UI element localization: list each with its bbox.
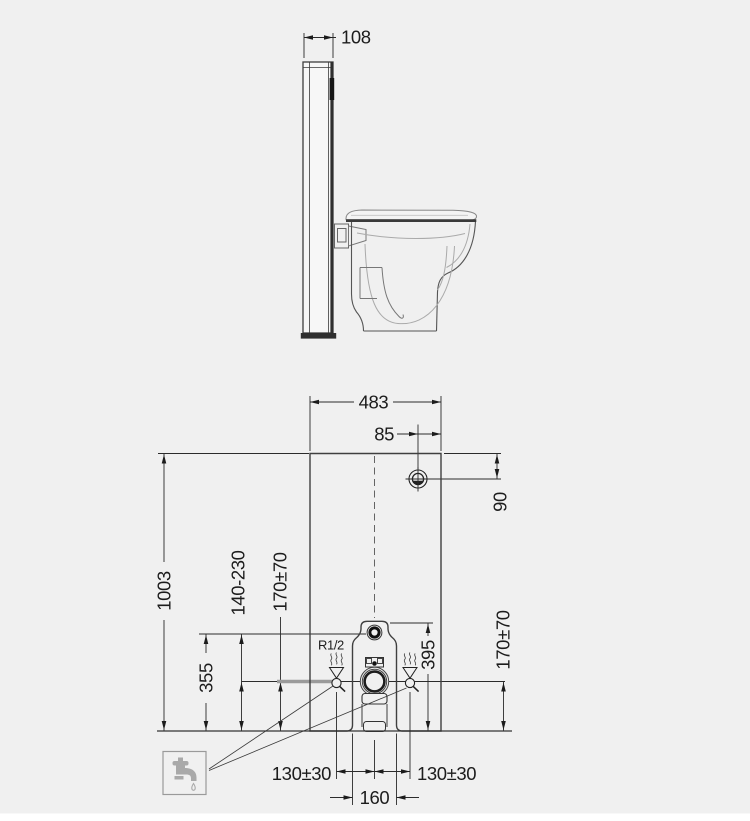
flush-button-icon bbox=[330, 78, 335, 100]
dim-height-label: 1003 bbox=[154, 571, 175, 611]
dim-left-offset: 130±30 bbox=[272, 763, 375, 784]
bottom-margin bbox=[0, 814, 750, 821]
dim-left-offset-label: 130±30 bbox=[272, 763, 331, 784]
technical-drawing-canvas: 108 bbox=[0, 0, 750, 821]
dim-fixing-offset-label: 85 bbox=[374, 424, 394, 445]
dim-outlet-height-395: 395 bbox=[390, 623, 439, 731]
water-valve-left-icon bbox=[330, 653, 346, 692]
dim-supply-height-355: 355 bbox=[196, 634, 217, 731]
fixing-screw-icon bbox=[406, 467, 431, 492]
dim-supply-range-140-230: 140-230 bbox=[228, 550, 249, 731]
dim-flush-height-left: 170±70 bbox=[270, 552, 291, 731]
water-tap-icon bbox=[163, 752, 206, 795]
dim-flush-height-right-label: 170±70 bbox=[493, 610, 514, 669]
toilet-side-view bbox=[335, 210, 477, 331]
front-view: 483 85 90 1003 bbox=[154, 392, 514, 809]
dim-supply-height-label: 355 bbox=[196, 663, 217, 693]
dim-fixing-height-90: 90 bbox=[428, 454, 511, 512]
dim-flush-height-left-label: 170±70 bbox=[270, 552, 291, 611]
dim-outlet-height-label: 395 bbox=[418, 640, 439, 670]
dim-depth-label: 108 bbox=[341, 27, 371, 48]
glass-panel-edge bbox=[330, 62, 333, 333]
mounting-bracket bbox=[366, 658, 384, 668]
panel-base bbox=[301, 333, 336, 339]
dim-right-offset-label: 130±30 bbox=[417, 763, 476, 784]
drain-pipe-socket bbox=[360, 667, 388, 731]
water-valve-right-icon bbox=[403, 653, 419, 692]
side-view-module-panel bbox=[301, 62, 336, 339]
dim-fixing-offset-85: 85 bbox=[374, 424, 441, 470]
dim-right-offset: 130±30 bbox=[375, 763, 477, 784]
dim-width-label: 483 bbox=[359, 392, 389, 413]
dim-depth-108: 108 bbox=[304, 27, 371, 59]
supply-inlet-pipe bbox=[367, 625, 382, 640]
drawing-svg: 108 bbox=[0, 0, 750, 821]
side-view: 108 bbox=[301, 27, 477, 339]
dim-supply-range-label: 140-230 bbox=[228, 550, 249, 615]
dim-flush-height-right: 170±70 bbox=[493, 610, 514, 731]
thread-label: R1/2 bbox=[318, 638, 344, 653]
dim-outlet-width-160: 160 bbox=[330, 787, 419, 808]
dim-outlet-width-label: 160 bbox=[360, 787, 390, 808]
dim-fixing-height-label: 90 bbox=[490, 492, 511, 512]
